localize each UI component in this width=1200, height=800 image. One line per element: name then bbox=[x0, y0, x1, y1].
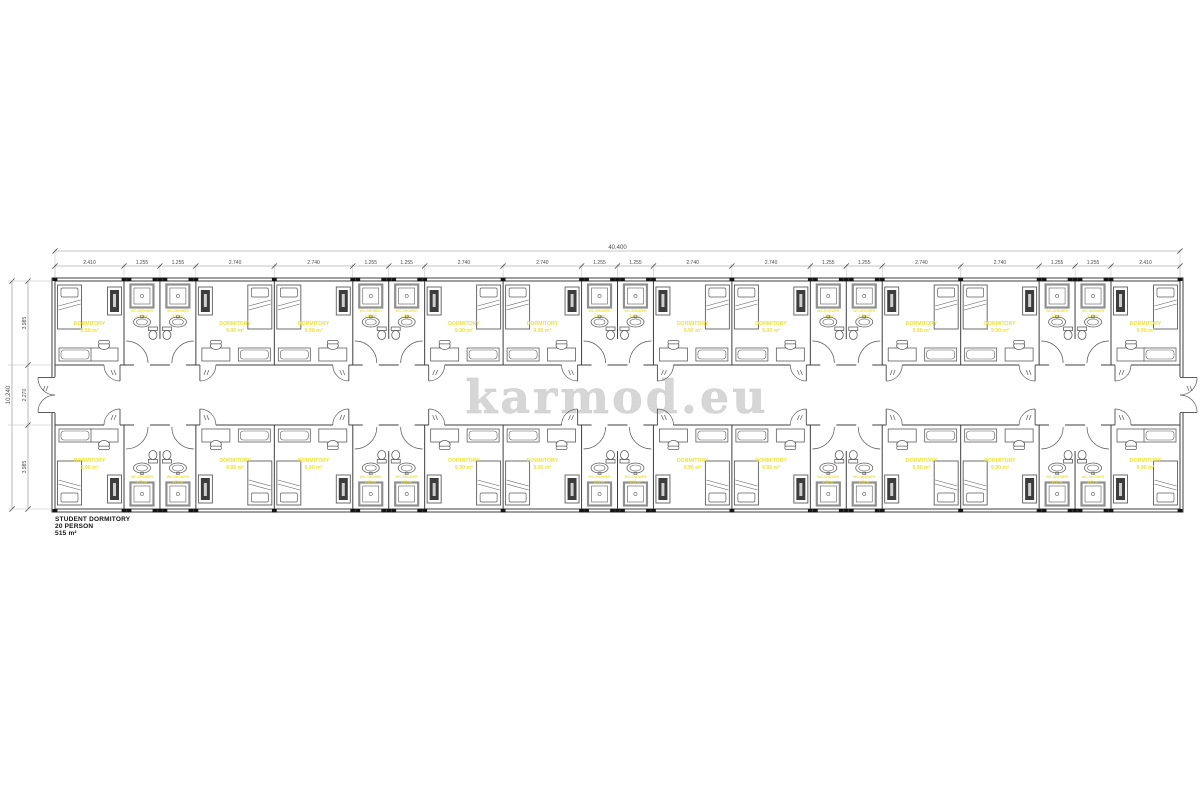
bathroom-area-label: 1.75 m² bbox=[858, 314, 871, 318]
chair-icon bbox=[1014, 341, 1025, 350]
room-area-label: 9.90 m² bbox=[305, 328, 323, 334]
top-room-row bbox=[55, 281, 1180, 381]
desk-icon bbox=[202, 429, 230, 442]
bathroom-name-label: WC-SHOWER bbox=[360, 309, 383, 313]
bathroom-door-icon bbox=[1041, 427, 1109, 449]
wall-joint-icon bbox=[158, 278, 163, 281]
drawing-canvas: karmod.euDORMITORY9.90 m²DORMITORY9.90 m… bbox=[0, 0, 1200, 800]
room-name-label: DORMITORY bbox=[448, 321, 480, 327]
bathroom-door-icon bbox=[355, 427, 423, 449]
toilet-icon bbox=[1064, 451, 1073, 464]
bathroom-name-label: WC-SHOWER bbox=[1046, 309, 1069, 313]
wardrobe-icon bbox=[1113, 287, 1127, 315]
toilet-icon bbox=[620, 327, 629, 340]
bathroom-door-icon bbox=[584, 427, 652, 449]
shower-icon bbox=[588, 483, 611, 506]
shower-icon bbox=[166, 483, 189, 506]
room-name-label: DORMITORY bbox=[984, 458, 1016, 464]
wall-joint-icon bbox=[813, 278, 818, 281]
desk-icon bbox=[1005, 429, 1033, 442]
shower-icon bbox=[817, 483, 840, 506]
dormitory-room bbox=[885, 409, 958, 505]
wardrobe-icon bbox=[656, 475, 670, 503]
dimension-segment-label: 1.255 bbox=[364, 260, 377, 266]
shower-icon bbox=[853, 483, 876, 506]
shower-icon bbox=[624, 483, 647, 506]
wall-joint-icon bbox=[839, 509, 844, 512]
bathroom-area-label: 1.75 m² bbox=[1087, 480, 1100, 484]
wall-joint-icon bbox=[53, 509, 58, 512]
room-area-label: 9.90 m² bbox=[533, 328, 551, 334]
wall-joint-icon bbox=[584, 278, 589, 281]
wall-joint-icon bbox=[350, 509, 355, 512]
wardrobe-icon bbox=[885, 287, 899, 315]
bed-icon bbox=[277, 461, 301, 505]
wall-joint-icon bbox=[422, 509, 427, 512]
wall-joint-icon bbox=[1078, 509, 1083, 512]
bathroom-area-label: 1.75 m² bbox=[136, 480, 149, 484]
desk-icon bbox=[1117, 348, 1145, 361]
bathroom-door-icon bbox=[126, 341, 194, 363]
bathroom-area-label: 1.75 m² bbox=[401, 314, 414, 318]
bathroom-name-label: WC-SHOWER bbox=[853, 309, 876, 313]
bed-icon bbox=[705, 461, 729, 505]
room-name-label: DORMITORY bbox=[74, 321, 106, 327]
wall-joint-icon bbox=[193, 278, 198, 281]
dimension-segment-label: 2.270 bbox=[22, 389, 28, 402]
room-door-icon bbox=[790, 409, 806, 425]
bathroom-name-label: WC-SHOWER bbox=[624, 475, 647, 479]
cabinet-icon bbox=[507, 429, 539, 442]
bathroom-door-icon bbox=[1041, 341, 1109, 363]
wall-joint-icon bbox=[615, 278, 620, 281]
wall-joint-icon bbox=[1109, 509, 1114, 512]
room-name-label: DORMITORY bbox=[219, 458, 251, 464]
dimension-segment-label: 3.985 bbox=[22, 317, 28, 330]
desk-icon bbox=[659, 429, 687, 442]
bathroom-door-icon bbox=[126, 427, 194, 449]
bathroom-name-label: WC-SHOWER bbox=[853, 475, 876, 479]
bathroom-name-label: WC-SHOWER bbox=[1082, 309, 1105, 313]
room-name-label: DORMITORY bbox=[677, 458, 709, 464]
dimension-segment-label: 3.985 bbox=[22, 461, 28, 474]
wardrobe-icon bbox=[198, 475, 212, 503]
room-door-icon bbox=[104, 365, 120, 381]
wall-joint-icon bbox=[646, 509, 651, 512]
desk-icon bbox=[90, 348, 118, 361]
dimension-segment-label: 2.740 bbox=[536, 260, 549, 266]
sink-icon bbox=[169, 463, 186, 475]
cabinet-icon bbox=[507, 348, 539, 361]
room-door-icon bbox=[333, 365, 349, 381]
sink-icon bbox=[820, 463, 837, 475]
bed-icon bbox=[58, 461, 82, 505]
desk-icon bbox=[1117, 429, 1145, 442]
bathroom-name-label: WC-SHOWER bbox=[131, 309, 154, 313]
wardrobe-icon bbox=[336, 475, 350, 503]
wall-joint-icon bbox=[610, 509, 615, 512]
room-name-label: DORMITORY bbox=[298, 458, 330, 464]
cabinet-icon bbox=[238, 348, 270, 361]
wall-joint-icon bbox=[272, 509, 277, 512]
wall-joint-icon bbox=[610, 278, 615, 281]
dormitory-room bbox=[963, 409, 1036, 505]
wall-joint-icon bbox=[1073, 278, 1078, 281]
wall-joint-icon bbox=[579, 278, 584, 281]
sink-icon bbox=[133, 463, 150, 475]
dimension-segment-label: 2.740 bbox=[765, 260, 778, 266]
room-area-label: 9.90 m² bbox=[455, 465, 473, 471]
shower-icon bbox=[624, 285, 647, 308]
room-name-label: DORMITORY bbox=[298, 321, 330, 327]
wardrobe-icon bbox=[108, 475, 122, 503]
wall-joint-icon bbox=[158, 509, 163, 512]
wardrobe-icon bbox=[1023, 287, 1037, 315]
cabinet-icon bbox=[925, 348, 957, 361]
wall-joint-icon bbox=[355, 509, 360, 512]
room-door-icon bbox=[1115, 409, 1131, 425]
room-area-label: 9.90 m² bbox=[81, 328, 99, 334]
room-area-label: 9.90 m² bbox=[912, 465, 930, 471]
chair-icon bbox=[668, 441, 679, 450]
desk-icon bbox=[431, 429, 459, 442]
room-name-label: DORMITORY bbox=[755, 321, 787, 327]
room-name-label: DORMITORY bbox=[74, 458, 106, 464]
wall-joint-icon bbox=[189, 509, 194, 512]
wall-joint-icon bbox=[620, 278, 625, 281]
toilet-icon bbox=[606, 451, 615, 464]
dimension-segment-label: 1.255 bbox=[629, 260, 642, 266]
wall-joint-icon bbox=[839, 278, 844, 281]
bathroom-area-label: 1.75 m² bbox=[822, 314, 835, 318]
sink-icon bbox=[1085, 463, 1102, 475]
wall-joint-icon bbox=[958, 509, 963, 512]
cabinet-icon bbox=[965, 429, 997, 442]
cabinet-icon bbox=[1144, 348, 1176, 361]
chair-icon bbox=[439, 441, 450, 450]
dormitory-room bbox=[277, 409, 350, 505]
bathroom-area-label: 1.75 m² bbox=[630, 480, 643, 484]
wall-joint-icon bbox=[1037, 278, 1042, 281]
wall-joint-icon bbox=[417, 509, 422, 512]
wall-joint-icon bbox=[813, 509, 818, 512]
wall-joint-icon bbox=[501, 278, 506, 281]
wall-joint-icon bbox=[391, 509, 396, 512]
wall-joint-icon bbox=[875, 278, 880, 281]
room-name-label: DORMITORY bbox=[1130, 321, 1162, 327]
wardrobe-icon bbox=[108, 287, 122, 315]
toilet-icon bbox=[377, 327, 386, 340]
room-area-label: 9.90 m² bbox=[762, 465, 780, 471]
wall-joint-icon bbox=[1109, 278, 1114, 281]
wall-joint-icon bbox=[880, 509, 885, 512]
wardrobe-icon bbox=[794, 287, 808, 315]
room-area-label: 9.90 m² bbox=[1137, 465, 1155, 471]
dimension-segment-label: 2.740 bbox=[686, 260, 699, 266]
chair-icon bbox=[439, 341, 450, 350]
dimension-segment-label: 2.740 bbox=[915, 260, 928, 266]
wardrobe-icon bbox=[1113, 475, 1127, 503]
bathroom-name-label: WC-SHOWER bbox=[589, 309, 612, 313]
cabinet-icon bbox=[965, 348, 997, 361]
bathroom-door-icon bbox=[812, 341, 880, 363]
bed-icon bbox=[734, 461, 758, 505]
room-area-label: 9.90 m² bbox=[1137, 328, 1155, 334]
chair-icon bbox=[785, 441, 796, 450]
floor-plan: karmod.euDORMITORY9.90 m²DORMITORY9.90 m… bbox=[0, 0, 1200, 800]
bathroom-area-label: 1.75 m² bbox=[1051, 480, 1064, 484]
wall-joint-icon bbox=[1068, 278, 1073, 281]
wall-joint-icon bbox=[1037, 509, 1042, 512]
bed-icon bbox=[477, 285, 501, 329]
chair-icon bbox=[897, 441, 908, 450]
wall-joint-icon bbox=[422, 278, 427, 281]
bathroom-area-label: 1.75 m² bbox=[858, 480, 871, 484]
chair-icon bbox=[99, 441, 110, 450]
room-area-label: 9.90 m² bbox=[81, 465, 99, 471]
sink-icon bbox=[856, 463, 873, 475]
wall-joint-icon bbox=[844, 278, 849, 281]
cabinet-icon bbox=[278, 348, 310, 361]
toilet-icon bbox=[1078, 451, 1087, 464]
wall-joint-icon bbox=[386, 509, 391, 512]
wall-joint-icon bbox=[844, 509, 849, 512]
wall-joint-icon bbox=[1104, 278, 1109, 281]
bed-icon bbox=[506, 461, 530, 505]
bathroom-area-label: 1.75 m² bbox=[401, 480, 414, 484]
room-door-icon bbox=[104, 409, 120, 425]
wardrobe-icon bbox=[427, 287, 441, 315]
wall-joint-icon bbox=[350, 278, 355, 281]
dimension-segment-label: 1.255 bbox=[1087, 260, 1100, 266]
bathroom-name-label: WC-SHOWER bbox=[131, 475, 154, 479]
room-name-label: DORMITORY bbox=[527, 458, 559, 464]
cabinet-icon bbox=[1144, 429, 1176, 442]
wardrobe-icon bbox=[565, 287, 579, 315]
room-area-label: 9.90 m² bbox=[991, 465, 1009, 471]
dormitory-room bbox=[58, 409, 122, 505]
room-door-icon bbox=[886, 409, 902, 425]
cabinet-icon bbox=[925, 429, 957, 442]
bathroom-door-icon bbox=[355, 341, 423, 363]
room-door-icon bbox=[333, 409, 349, 425]
wardrobe-icon bbox=[565, 475, 579, 503]
wall-joint-icon bbox=[386, 278, 391, 281]
desk-icon bbox=[548, 348, 576, 361]
room-name-label: DORMITORY bbox=[755, 458, 787, 464]
dormitory-room bbox=[198, 409, 271, 505]
room-area-label: 9.90 m² bbox=[455, 328, 473, 334]
bathroom-door-icon bbox=[812, 427, 880, 449]
desk-icon bbox=[1005, 348, 1033, 361]
room-area-label: 9.90 m² bbox=[533, 465, 551, 471]
bathroom-name-label: WC-SHOWER bbox=[817, 309, 840, 313]
dimension-segment-label: 1.255 bbox=[822, 260, 835, 266]
wall-joint-icon bbox=[417, 278, 422, 281]
wall-joint-icon bbox=[1042, 278, 1047, 281]
dimension-segment-label: 1.255 bbox=[136, 260, 149, 266]
dimension-segment-label: 2.410 bbox=[1139, 260, 1152, 266]
room-door-icon bbox=[200, 409, 216, 425]
bathroom-name-label: WC-SHOWER bbox=[396, 309, 419, 313]
bathroom-name-label: WC-SHOWER bbox=[167, 309, 190, 313]
drawing-area: 515 m² bbox=[55, 531, 130, 538]
wall-joint-icon bbox=[620, 509, 625, 512]
wall-joint-icon bbox=[584, 509, 589, 512]
chair-icon bbox=[327, 341, 338, 350]
bathroom-area-label: 1.75 m² bbox=[172, 314, 185, 318]
toilet-icon bbox=[620, 451, 629, 464]
desk-icon bbox=[888, 348, 916, 361]
bathroom-name-label: WC-SHOWER bbox=[1046, 475, 1069, 479]
watermark: karmod.eu bbox=[465, 370, 768, 424]
room-area-label: 9.90 m² bbox=[226, 465, 244, 471]
desk-icon bbox=[659, 348, 687, 361]
chair-icon bbox=[1125, 341, 1136, 350]
toilet-icon bbox=[162, 327, 171, 340]
bathroom-area-label: 1.75 m² bbox=[822, 480, 835, 484]
shower-icon bbox=[130, 483, 153, 506]
wardrobe-icon bbox=[427, 475, 441, 503]
cabinet-icon bbox=[238, 429, 270, 442]
wall-joint-icon bbox=[849, 278, 854, 281]
bathroom-area-label: 1.75 m² bbox=[172, 480, 185, 484]
wall-joint-icon bbox=[127, 509, 132, 512]
wall-joint-icon bbox=[1042, 509, 1047, 512]
wall-joint-icon bbox=[355, 278, 360, 281]
wall-joint-icon bbox=[122, 509, 127, 512]
room-door-icon bbox=[200, 365, 216, 381]
wardrobe-icon bbox=[336, 287, 350, 315]
dimension-total-label: 40.400 bbox=[608, 245, 627, 251]
cabinet-icon bbox=[467, 429, 499, 442]
sink-icon bbox=[591, 463, 608, 475]
bathroom-area-label: 1.75 m² bbox=[594, 314, 607, 318]
cabinet-icon bbox=[467, 348, 499, 361]
dimension-segment-label: 2.740 bbox=[458, 260, 471, 266]
desk-icon bbox=[776, 348, 804, 361]
room-name-label: DORMITORY bbox=[906, 458, 938, 464]
shower-icon bbox=[1082, 285, 1105, 308]
desk-icon bbox=[202, 348, 230, 361]
shower-icon bbox=[853, 285, 876, 308]
room-door-icon bbox=[790, 365, 806, 381]
wall-joint-icon bbox=[189, 278, 194, 281]
sink-icon bbox=[362, 463, 379, 475]
chair-icon bbox=[210, 341, 221, 350]
wardrobe-icon bbox=[1023, 475, 1037, 503]
bed-icon bbox=[934, 461, 958, 505]
chair-icon bbox=[897, 341, 908, 350]
dimension-total-label: 10.240 bbox=[6, 385, 12, 404]
wall-joint-icon bbox=[958, 278, 963, 281]
sink-icon bbox=[398, 463, 415, 475]
wall-joint-icon bbox=[615, 509, 620, 512]
chair-icon bbox=[1125, 441, 1136, 450]
bed-icon bbox=[248, 285, 272, 329]
room-area-label: 9.90 m² bbox=[226, 328, 244, 334]
room-door-icon bbox=[429, 409, 445, 425]
bed-icon bbox=[934, 285, 958, 329]
wall-joint-icon bbox=[651, 278, 656, 281]
bed-icon bbox=[1154, 461, 1178, 505]
bathroom-area-label: 1.75 m² bbox=[136, 314, 149, 318]
toilet-icon bbox=[377, 451, 386, 464]
wall-joint-icon bbox=[153, 278, 158, 281]
room-area-label: 9.90 m² bbox=[684, 328, 702, 334]
desk-icon bbox=[888, 429, 916, 442]
shower-icon bbox=[395, 483, 418, 506]
desk-icon bbox=[90, 429, 118, 442]
toilet-icon bbox=[1078, 327, 1087, 340]
desk-icon bbox=[776, 429, 804, 442]
title-block: STUDENT DORMITORY 20 PERSON 515 m² bbox=[55, 517, 130, 537]
cabinet-icon bbox=[736, 429, 768, 442]
cabinet-icon bbox=[278, 429, 310, 442]
bathroom-area-label: 1.75 m² bbox=[630, 314, 643, 318]
cabinet-icon bbox=[59, 348, 91, 361]
wall-joint-icon bbox=[501, 509, 506, 512]
wall-joint-icon bbox=[579, 509, 584, 512]
wall-joint-icon bbox=[53, 278, 58, 281]
wall-joint-icon bbox=[808, 278, 813, 281]
room-name-label: DORMITORY bbox=[677, 321, 709, 327]
wall-joint-icon bbox=[1104, 509, 1109, 512]
shower-icon bbox=[130, 285, 153, 308]
room-name-label: DORMITORY bbox=[448, 458, 480, 464]
shower-icon bbox=[1082, 483, 1105, 506]
wardrobe-icon bbox=[656, 287, 670, 315]
room-area-label: 9.90 m² bbox=[762, 328, 780, 334]
toilet-icon bbox=[606, 327, 615, 340]
room-name-label: DORMITORY bbox=[219, 321, 251, 327]
room-name-label: DORMITORY bbox=[1130, 458, 1162, 464]
bathroom-name-label: WC-SHOWER bbox=[396, 475, 419, 479]
dormitory-room bbox=[1113, 409, 1177, 505]
shower-icon bbox=[1046, 285, 1069, 308]
bathroom-area-label: 1.75 m² bbox=[594, 480, 607, 484]
wall-joint-icon bbox=[729, 278, 734, 281]
toilet-icon bbox=[148, 327, 157, 340]
chair-icon bbox=[556, 441, 567, 450]
wall-joint-icon bbox=[880, 278, 885, 281]
cabinet-icon bbox=[59, 429, 91, 442]
shower-icon bbox=[588, 285, 611, 308]
wall-joint-icon bbox=[808, 509, 813, 512]
bed-icon bbox=[963, 461, 987, 505]
dimension-segment-label: 1.255 bbox=[593, 260, 606, 266]
cabinet-icon bbox=[696, 348, 728, 361]
room-name-label: DORMITORY bbox=[984, 321, 1016, 327]
shower-icon bbox=[817, 285, 840, 308]
room-door-icon bbox=[1019, 365, 1035, 381]
chair-icon bbox=[668, 341, 679, 350]
toilet-icon bbox=[391, 327, 400, 340]
chair-icon bbox=[556, 341, 567, 350]
room-name-label: DORMITORY bbox=[527, 321, 559, 327]
room-door-icon bbox=[1115, 365, 1131, 381]
room-area-label: 9.90 m² bbox=[684, 465, 702, 471]
bathroom-door-icon bbox=[584, 341, 652, 363]
cabinet-icon bbox=[696, 429, 728, 442]
wardrobe-icon bbox=[885, 475, 899, 503]
wall-joint-icon bbox=[1178, 278, 1183, 281]
toilet-icon bbox=[1064, 327, 1073, 340]
toilet-icon bbox=[162, 451, 171, 464]
wall-joint-icon bbox=[127, 278, 132, 281]
wall-joint-icon bbox=[1068, 509, 1073, 512]
dimension-segment-label: 2.740 bbox=[307, 260, 320, 266]
